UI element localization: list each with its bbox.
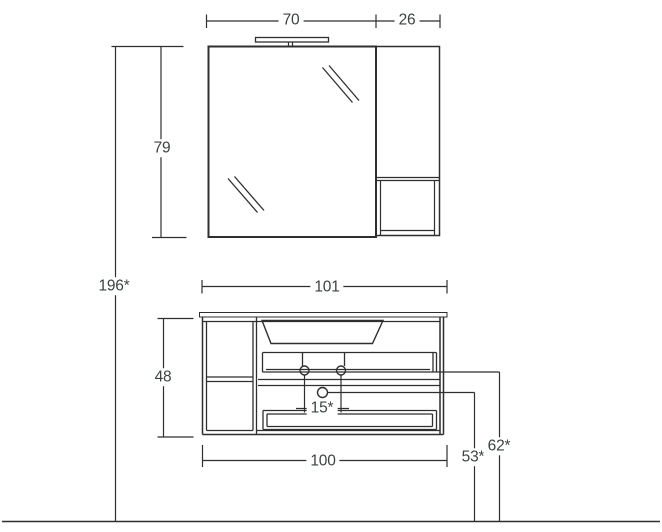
washbasin <box>262 321 383 344</box>
cabinet-outline <box>203 318 444 435</box>
handle-knob-upper-left <box>300 366 309 375</box>
dim-label-vanity-top-width: 101 <box>310 278 343 296</box>
dimension-lines <box>112 15 500 522</box>
dim-height-53 <box>328 393 475 522</box>
mirror-reflection-marks <box>228 66 359 213</box>
dim-label-knob-spacing: 15* <box>307 399 338 417</box>
lower-drawer <box>263 411 437 430</box>
side-cabinet-shelf-details <box>376 178 440 236</box>
dim-label-mirror-height: 79 <box>150 139 175 157</box>
mirror-cabinet <box>209 38 440 238</box>
upper-drawer <box>263 353 444 373</box>
dim-label-height-62: 62* <box>484 437 515 455</box>
technical-drawing-page: 70 26 79 196* 101 48 15* 100 53* 62* <box>0 0 662 532</box>
left-shelf-unit <box>203 318 257 435</box>
dim-label-mirror-width: 70 <box>279 11 304 29</box>
dim-label-vanity-bottom-width: 100 <box>306 452 339 470</box>
lamp <box>256 38 329 47</box>
dim-label-total-height: 196* <box>94 277 133 295</box>
handle-knob-lower <box>318 388 328 398</box>
countertop <box>200 313 448 318</box>
lamp-bar <box>256 38 329 43</box>
mirror-panel <box>209 47 377 238</box>
side-cabinet <box>376 47 440 236</box>
dim-label-side-cabinet-width: 26 <box>395 11 420 29</box>
handle-knob-upper-right <box>337 366 346 375</box>
drawer-gap-band <box>257 380 441 431</box>
dim-label-vanity-body-height: 48 <box>151 368 176 386</box>
